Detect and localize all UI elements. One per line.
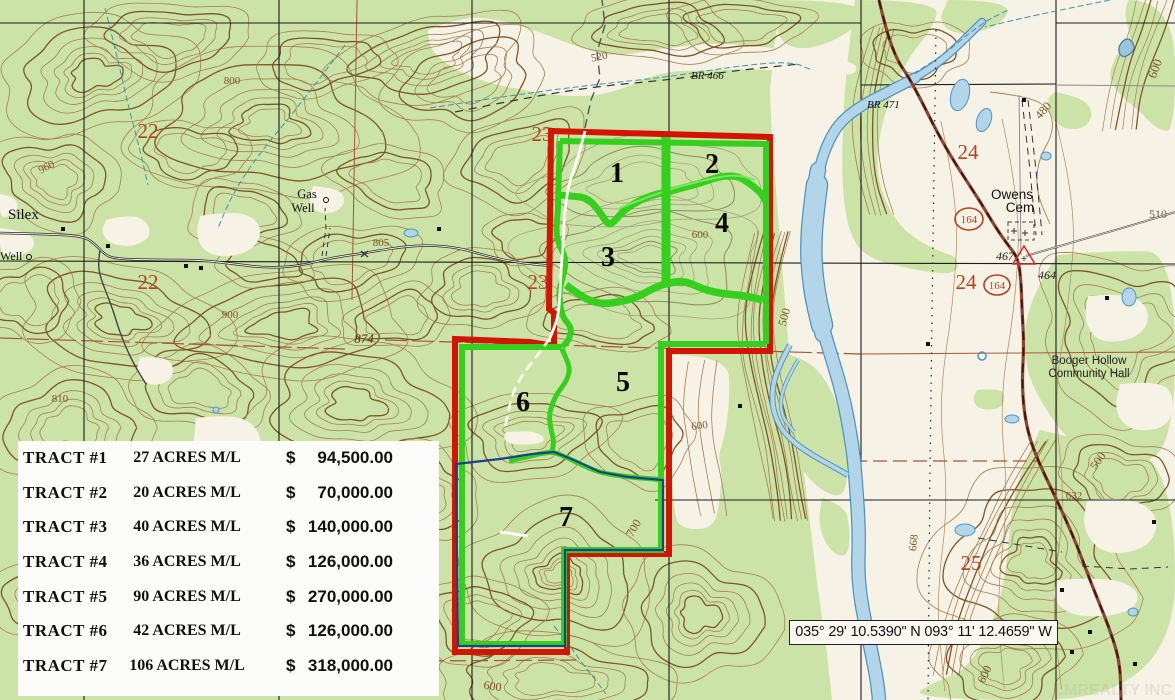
svg-text:24: 24 (958, 140, 980, 164)
svg-text:Gas: Gas (297, 187, 317, 201)
svg-text:BR 471: BR 471 (867, 99, 900, 111)
svg-text:800: 800 (224, 75, 241, 87)
svg-text:805: 805 (373, 237, 390, 249)
svg-text:3: 3 (601, 242, 615, 273)
svg-text:164: 164 (989, 280, 1006, 292)
svg-text:22: 22 (138, 270, 159, 294)
svg-text:874: 874 (354, 331, 374, 346)
svg-text:900: 900 (222, 309, 239, 321)
svg-text:164: 164 (961, 214, 978, 226)
svg-text:1: 1 (610, 158, 624, 189)
svg-text:668: 668 (907, 533, 920, 551)
svg-text:24: 24 (956, 270, 978, 294)
svg-text:6: 6 (516, 387, 530, 418)
svg-text:Well: Well (0, 249, 23, 263)
svg-text:Community Hall: Community Hall (1048, 368, 1129, 380)
svg-text:7: 7 (559, 502, 573, 533)
svg-text:600: 600 (691, 419, 710, 433)
svg-text:Silex: Silex (8, 207, 39, 223)
svg-text:5: 5 (616, 367, 630, 398)
svg-text:4: 4 (715, 208, 729, 239)
svg-text:467: 467 (996, 249, 1015, 263)
svg-text:LMREALTY INC: LMREALTY INC (1054, 682, 1172, 699)
svg-text:25: 25 (961, 551, 982, 575)
svg-text:BR 466: BR 466 (691, 70, 724, 82)
svg-text:Booger Hollow: Booger Hollow (1052, 355, 1127, 367)
svg-text:810: 810 (52, 393, 69, 405)
svg-text:464: 464 (1038, 268, 1056, 282)
svg-text:Well: Well (291, 201, 315, 215)
svg-text:2: 2 (705, 149, 719, 180)
svg-text:23: 23 (528, 270, 549, 294)
svg-text:Cem: Cem (1006, 200, 1035, 215)
svg-text:22: 22 (138, 119, 159, 143)
svg-text:600: 600 (692, 229, 709, 241)
svg-text:600: 600 (483, 678, 503, 694)
